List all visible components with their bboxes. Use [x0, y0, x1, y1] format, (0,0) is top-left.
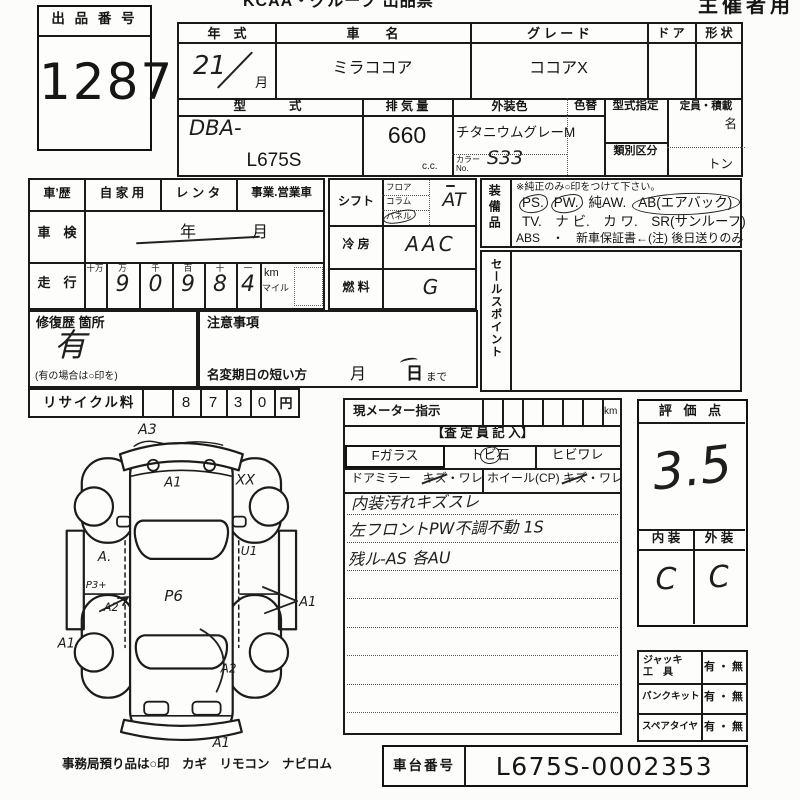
grade-label: グ レ ー ド — [470, 27, 647, 41]
chassis-label: 車台番号 — [384, 759, 464, 774]
year-label: 年 式 — [179, 27, 275, 41]
chassis-value: L675S-0002353 — [464, 753, 745, 781]
mileage-unit-km: km — [264, 267, 279, 279]
stone-chip-label: トビ石 — [445, 448, 535, 462]
color-no-value: S33 — [487, 148, 523, 169]
equipment-note: ※純正のみ○印をつけて下さい。 — [516, 182, 660, 193]
sales-point-box: セールスポイント — [480, 250, 742, 392]
left-sill — [67, 531, 84, 630]
mark-left-a2: A2 — [103, 601, 119, 614]
shift-panel: パネル — [386, 212, 412, 221]
shift-value: AT — [429, 190, 479, 211]
month-suffix: 月 — [255, 76, 268, 90]
capacity-persons: 名 — [667, 118, 737, 132]
rear-left-wheel — [75, 633, 113, 671]
shift-value-overbar — [446, 185, 455, 187]
shift-column: コラム — [386, 197, 411, 206]
ext-color-label: 外装色 — [452, 100, 567, 113]
windshield — [135, 521, 228, 559]
rear-right-wheel — [250, 633, 288, 671]
mark-bottom-a1: A1 — [212, 736, 230, 750]
grade-value: ココアX — [470, 60, 647, 78]
equipment-line1: PS.PW.純AW.AB(エアバック) — [522, 196, 734, 211]
model-prefix: DBA- — [189, 117, 242, 140]
equipment-ps: PS. — [522, 196, 544, 211]
year-value: 21 — [193, 52, 226, 81]
interior-label: 内 装 — [639, 532, 693, 546]
rear-window — [136, 635, 227, 668]
recycle-d1: 8 — [172, 395, 200, 412]
recycle-d2: 7 — [200, 395, 226, 412]
auction-number-value: 1287 — [39, 55, 150, 110]
right-mirror — [233, 517, 246, 527]
mileage-d1: 9 — [106, 273, 139, 297]
mileage-d4: 8 — [204, 273, 236, 297]
crack-label: ヒビワレ — [535, 448, 620, 462]
history-label: 車’歴 — [30, 187, 84, 200]
mileage-stamp-box — [294, 267, 323, 306]
deadline-day: 日 — [406, 365, 423, 384]
exterior-grade: C — [692, 559, 747, 596]
jack-value: 有 ・ 無 — [701, 661, 746, 673]
car-name-value: ミラココア — [275, 60, 470, 78]
jack-label-2: 工 具 — [643, 667, 673, 678]
recycle-label: リサイクル料 — [43, 396, 135, 411]
shift-floor: フロア — [386, 183, 412, 192]
evaluation-score: 3.5 — [636, 435, 748, 503]
mark-rear-a2: A2 — [220, 662, 237, 676]
fuel-label: 燃 料 — [330, 281, 382, 294]
chassis-box: 車台番号 L675S-0002353 — [382, 745, 748, 787]
displacement-unit: c.c. — [422, 161, 438, 172]
displacement-label: 排 気 量 — [362, 100, 452, 113]
class-section-label: 類別区分 — [604, 145, 667, 157]
right-sill — [279, 531, 296, 630]
mark-left-a: A. — [97, 550, 111, 565]
capacity-tons: トン — [667, 158, 733, 172]
door-label: ド ア — [647, 27, 695, 40]
interior-grade: C — [639, 563, 693, 596]
meter-label: 現メーター指示 — [353, 405, 441, 419]
puncture-value: 有 ・ 無 — [701, 691, 746, 703]
deadline-until: まで — [426, 372, 447, 384]
mark-u1: U1 — [241, 544, 258, 558]
shift-label: シフト — [330, 195, 382, 208]
auction-number-label: 出 品 番 号 — [39, 12, 150, 27]
auction-number-box: 出 品 番 号 1287 — [37, 5, 152, 151]
mileage-d3: 9 — [172, 273, 204, 297]
shape-label: 形 状 — [695, 27, 743, 40]
mark-p6: P6 — [164, 587, 183, 605]
color-no-label2: No. — [456, 165, 468, 174]
jack-label-1: ジャッキ — [643, 655, 683, 666]
sheet-title: KCAA・グループ 出品票 — [243, 0, 434, 11]
car-damage-diagram: A3 A1 XX A. U1 P3+ A2 P6 A1 A1 A2 A1 — [52, 418, 347, 750]
recycle-d4: 0 — [250, 395, 274, 412]
history-rental: レ ン タ — [160, 187, 236, 201]
front-left-wheel — [75, 487, 113, 525]
deadline-label: 名変期日の短い方 — [207, 369, 307, 383]
vehicle-table: 年 式 車 名 グ レ ー ド ド ア 形 状 21 月 ミラココア ココアX … — [177, 22, 743, 177]
repair-value: 有 — [54, 328, 86, 363]
mark-hood-a1: A1 — [163, 475, 181, 490]
evaluation-box: 評 価 点 3.5 内 装 外 装 C C — [637, 399, 748, 627]
footer-note: 事務局預り品は○印 カギ リモコン ナビロム — [62, 758, 332, 772]
wheel-label: ホイール(CP) キズ・ワレ — [487, 472, 623, 485]
model-code: L675S — [219, 151, 329, 172]
mileage-d5: 4 — [236, 273, 260, 297]
fuel-value: G — [382, 276, 479, 298]
ext-color-value: チタニウムグレーM — [456, 126, 575, 141]
mileage-label: 走 行 — [30, 276, 84, 290]
front-right-wheel — [250, 487, 288, 525]
repair-box: 修復歴 箇所 有 (有の場合は○印を) — [28, 310, 198, 388]
deadline-month: 月 — [350, 366, 366, 384]
assessor-note-2: 左フロントPW不調不動 1S — [349, 518, 544, 539]
sales-point-label: セールスポイント — [489, 258, 502, 386]
accessories-box: ジャッキ 工 具 有 ・ 無 パンクキット 有 ・ 無 スペアタイヤ 有 ・ 無 — [637, 650, 748, 742]
evaluation-label: 評 価 点 — [639, 404, 745, 418]
equipment-pw: PW. — [554, 196, 579, 211]
mark-right-a1: A1 — [298, 595, 316, 610]
name-label: 車 名 — [275, 27, 470, 41]
mirror-label: ドアミラー キズ・ワレ — [351, 472, 483, 485]
equipment-label: 装備品 — [487, 184, 500, 244]
mark-bottomleft-a1: A1 — [57, 636, 75, 651]
type-designation-label: 型式指定 — [604, 100, 667, 113]
caution-label: 注意事項 — [207, 316, 259, 330]
controls-table: シフト フロア コラム パネル AT 冷 房 AAC 燃 料 G — [328, 178, 477, 310]
equipment-box: 装備品 ※純正のみ○印をつけて下さい。 PS.PW.純AW.AB(エアバック) … — [480, 178, 742, 248]
equipment-line2: TV. ナ ビ. カ ワ. SR(サンルーフ) — [522, 215, 746, 230]
history-table: 車’歴 自 家 用 レ ン タ 事業.営業車 車 検 年 月 走 行 十万 万 … — [28, 178, 325, 310]
caution-box: 注意事項 名変期日の短い方 月 日 まで — [198, 310, 478, 388]
auction-sheet: KCAA・グループ 出品票 主催者用 出 品 番 号 1287 年 式 車 名 … — [0, 0, 800, 800]
history-business: 事業.営業車 — [236, 187, 327, 200]
spare-value: 有 ・ 無 — [701, 721, 746, 733]
left-mirror — [117, 517, 130, 527]
inspection-label: 車 検 — [30, 226, 84, 240]
inspection-month: 月 — [252, 224, 268, 242]
puncture-label: パンクキット — [642, 692, 699, 702]
repair-note: (有の場合は○印を) — [35, 371, 118, 382]
recycle-unit: 円 — [274, 397, 298, 411]
history-private: 自 家 用 — [84, 187, 160, 201]
recycle-d3: 3 — [226, 395, 250, 412]
ac-value: AAC — [382, 233, 479, 255]
assessor-note-1: 内装汚れキズスレ — [351, 493, 479, 513]
f-glass-label: Fガラス — [345, 449, 445, 463]
assessor-section: 現メーター指示 km 【査 定 員 記 入】 Fガラス トビ石 ヒビワレ ドアミ… — [343, 398, 622, 735]
meter-unit: km — [604, 406, 617, 417]
displacement-value: 660 — [362, 123, 452, 148]
mark-p3: P3+ — [86, 580, 107, 591]
model-label: 型 式 — [179, 100, 362, 114]
equipment-aw: 純AW. — [589, 195, 627, 210]
stone-chip-circled: ビ — [483, 448, 496, 462]
mark-xx: XX — [235, 472, 256, 488]
recycle-box: リサイクル料 8 7 3 0 円 — [28, 388, 300, 418]
mileage-d2: 0 — [139, 273, 172, 297]
ac-label: 冷 房 — [330, 238, 382, 251]
equipment-line3: ABS ・ 新車保証書←(注) 後日送りのみ — [516, 232, 743, 245]
assessor-header: 【査 定 員 記 入】 — [345, 427, 620, 441]
audience-label: 主催者用 — [698, 0, 794, 17]
spare-label: スペアタイヤ — [642, 722, 698, 732]
mark-a3: A3 — [137, 422, 157, 438]
assessor-note-3: 残ル-AS 各AU — [348, 549, 451, 568]
color-change-label: 色替 — [567, 100, 604, 113]
capacity-label: 定員・積載 — [667, 101, 745, 113]
mileage-unit-mile: マイル — [262, 284, 289, 294]
mileage-h0: 十万 — [84, 264, 106, 273]
equipment-airbag: AB(エアバック) — [636, 196, 734, 211]
exterior-label: 外 装 — [693, 532, 745, 546]
